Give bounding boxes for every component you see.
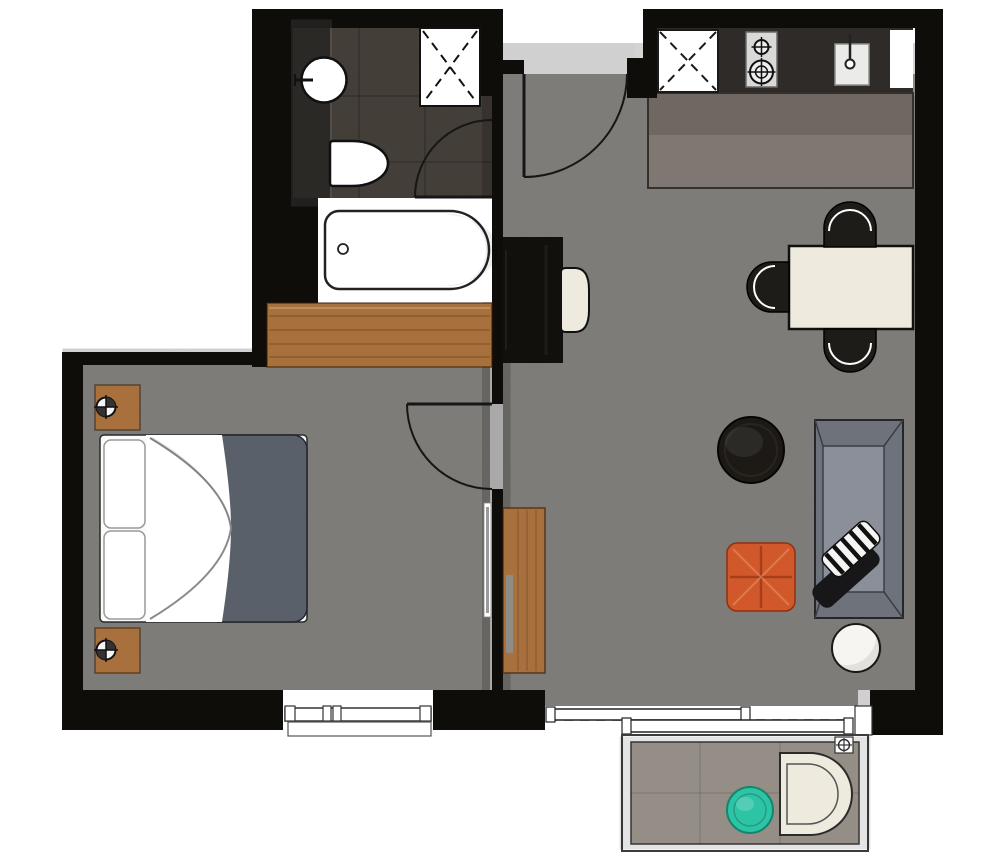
desk-chair <box>561 268 589 332</box>
bedroom-window <box>283 690 433 736</box>
floor-plan <box>0 0 1000 857</box>
appliance-square <box>658 30 718 92</box>
kitchen-worktop-upper <box>648 93 913 135</box>
dining-table <box>789 246 913 329</box>
ceiling-light-icon <box>835 737 853 753</box>
coffee-table <box>718 417 784 483</box>
kitchen-worktop-lower <box>648 135 913 188</box>
wall-bedroom-left <box>62 352 83 730</box>
living-room-floor-strip <box>543 688 858 707</box>
hob-two-burners <box>746 32 777 87</box>
pillow-bottom <box>104 531 145 619</box>
pillow-top <box>104 440 145 528</box>
nightstand-bottom <box>94 628 140 673</box>
dining-chair-top <box>824 202 876 247</box>
wall-bathroom-corner <box>480 9 503 96</box>
wall-bottom-middle <box>433 690 545 730</box>
wall-right <box>915 9 943 735</box>
wall-kitchen-top <box>643 9 943 28</box>
bathtub-drain <box>338 244 348 254</box>
dining-chair-bottom <box>824 329 876 372</box>
orange-ottoman <box>727 543 795 611</box>
counter-end-panel <box>890 30 913 88</box>
white-side-table <box>832 624 882 673</box>
desk <box>503 237 563 363</box>
wall-entry-stub-right <box>627 58 643 98</box>
shower <box>420 28 480 106</box>
nightstand-top <box>94 385 140 430</box>
toilet <box>330 141 388 186</box>
balcony <box>622 735 868 851</box>
wall-entry-stub-left <box>503 60 524 74</box>
balcony-sliding-door <box>545 706 872 735</box>
wall-bedroom-bottom-left <box>62 690 283 730</box>
wall-tv <box>484 503 491 617</box>
wall-bottom-right-block <box>870 690 943 735</box>
bathtub-basin <box>325 211 489 289</box>
sofa <box>809 420 903 618</box>
vanity-noise <box>293 28 330 198</box>
wall-bathroom-left <box>252 9 293 303</box>
lounge-chair <box>780 753 852 835</box>
teal-round-table <box>727 787 773 833</box>
wardrobe <box>267 303 492 367</box>
wall-center-lower <box>492 489 503 690</box>
double-bed <box>100 435 307 622</box>
kitchen <box>648 28 913 188</box>
bathtub <box>318 198 498 302</box>
wall-bedroom-top <box>62 352 270 365</box>
tv-cabinet <box>503 508 545 673</box>
wall-tub-nook-left <box>293 198 318 303</box>
